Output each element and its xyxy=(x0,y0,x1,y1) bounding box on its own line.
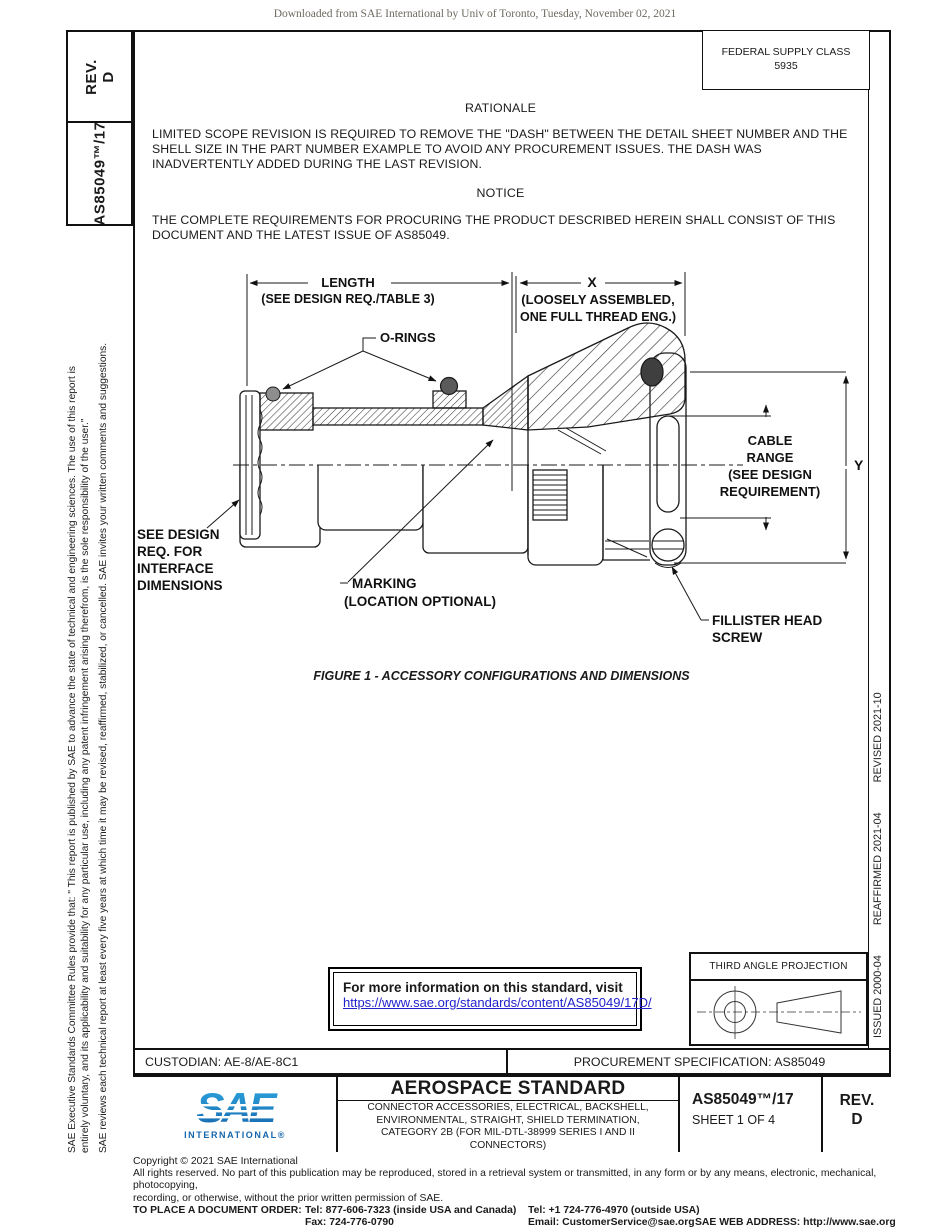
figure-1-drawing: LENGTH (SEE DESIGN REQ./TABLE 3) X (LOOS… xyxy=(133,258,870,658)
see-design-label-4: DIMENSIONS xyxy=(137,578,223,593)
fsc-value: 5935 xyxy=(703,59,869,73)
fillister-label-1: FILLISTER HEAD xyxy=(712,613,822,628)
cable-range-label-4: REQUIREMENT) xyxy=(720,484,820,499)
doc-number-cell: AS85049™/17 SHEET 1 OF 4 xyxy=(680,1077,823,1152)
third-angle-projection-symbol xyxy=(691,981,866,1043)
rev-cell-value: D xyxy=(823,1110,891,1129)
see-design-label-1: SEE DESIGN xyxy=(137,527,220,542)
legal-text-line2: entirely voluntary, and its applicabilit… xyxy=(80,419,91,1153)
notice-heading: NOTICE xyxy=(133,186,868,200)
length-note-label: (SEE DESIGN REQ./TABLE 3) xyxy=(261,292,434,306)
rev-label: REV. xyxy=(82,59,99,95)
copyright-footer: Copyright © 2021 SAE International All r… xyxy=(133,1156,923,1229)
custodian-cell: CUSTODIAN: AE-8/AE-8C1 xyxy=(133,1050,508,1073)
title-block: SAE INTERNATIONAL® AEROSPACE STANDARD CO… xyxy=(133,1075,891,1152)
x-note1-label: (LOOSELY ASSEMBLED, xyxy=(521,292,674,307)
sae-logo-text: SAE xyxy=(196,1084,278,1131)
order-email: Email: CustomerService@sae.org xyxy=(528,1217,695,1229)
rev-cell-label: REV. xyxy=(823,1091,891,1110)
standard-subtitle-4: CONNECTORS) xyxy=(338,1140,678,1153)
sae-logo-subtext: INTERNATIONAL® xyxy=(184,1130,286,1140)
standard-subtitle-1: CONNECTOR ACCESSORIES, ELECTRICAL, BACKS… xyxy=(338,1102,678,1115)
rationale-heading: RATIONALE xyxy=(133,101,868,115)
sheet-number: SHEET 1 OF 4 xyxy=(692,1113,821,1127)
rev-cell: REV. D xyxy=(823,1077,891,1152)
x-dim-label: X xyxy=(587,274,597,290)
y-dim-label: Y xyxy=(854,457,864,473)
reaffirmed-date: REAFFIRMED 2021-04 xyxy=(872,812,884,925)
document-page: Downloaded from SAE International by Uni… xyxy=(0,0,950,1230)
lockwire-hole xyxy=(641,358,663,386)
third-angle-projection-box: THIRD ANGLE PROJECTION xyxy=(689,952,868,1046)
copyright-line: Copyright © 2021 SAE International xyxy=(133,1156,923,1168)
rationale-body: LIMITED SCOPE REVISION IS REQUIRED TO RE… xyxy=(152,127,864,171)
order-label: TO PLACE A DOCUMENT ORDER: xyxy=(133,1205,302,1217)
see-design-label-2: REQ. FOR xyxy=(137,544,203,559)
cable-range-label-2: RANGE xyxy=(747,450,794,465)
custodian-row: CUSTODIAN: AE-8/AE-8C1 PROCUREMENT SPECI… xyxy=(133,1048,891,1075)
revision-history-strip: ISSUED 2000-04 REAFFIRMED 2021-04 REVISE… xyxy=(872,692,884,1038)
more-info-text: For more information on this standard, v… xyxy=(343,980,627,995)
legal-text-line1: SAE Executive Standards Committee Rules … xyxy=(67,366,78,1153)
standard-subtitle-2: ENVIRONMENTAL, STRAIGHT, SHIELD TERMINAT… xyxy=(338,1115,678,1128)
order-fax: Fax: 724-776-0790 xyxy=(305,1217,394,1229)
see-design-label-3: INTERFACE xyxy=(137,561,214,576)
download-notice: Downloaded from SAE International by Uni… xyxy=(0,8,950,20)
cable-range-label-3: (SEE DESIGN xyxy=(728,467,812,482)
standard-subtitle-3: CATEGORY 2B (FOR MIL-DTL-38999 SERIES I … xyxy=(338,1127,678,1140)
fillister-label-2: SCREW xyxy=(712,630,763,645)
rights-line-1: All rights reserved. No part of this pub… xyxy=(133,1168,923,1192)
marking-label-2: (LOCATION OPTIONAL) xyxy=(344,594,496,609)
o-ring-left xyxy=(266,387,280,401)
standard-type-title: AEROSPACE STANDARD xyxy=(338,1077,678,1101)
third-angle-projection-title: THIRD ANGLE PROJECTION xyxy=(691,954,866,981)
more-info-box: For more information on this standard, v… xyxy=(328,967,642,1031)
legal-text-line3: SAE reviews each technical report at lea… xyxy=(98,343,109,1153)
notice-body: THE COMPLETE REQUIREMENTS FOR PROCURING … xyxy=(152,213,864,243)
figure-caption: FIGURE 1 - ACCESSORY CONFIGURATIONS AND … xyxy=(133,669,870,683)
o-ring-right xyxy=(441,378,458,395)
order-web: SAE WEB ADDRESS: http://www.sae.org xyxy=(695,1217,896,1229)
order-tel-1: Tel: 877-606-7323 (inside USA and Canada… xyxy=(305,1205,516,1217)
rev-value: D xyxy=(99,59,116,95)
rights-line-2: recording, or otherwise, without the pri… xyxy=(133,1193,923,1205)
length-dim-label: LENGTH xyxy=(321,275,374,290)
doc-number-vertical: AS85049™/17 xyxy=(91,122,108,226)
procurement-cell: PROCUREMENT SPECIFICATION: AS85049 xyxy=(508,1050,891,1073)
cable-range-label-1: CABLE xyxy=(748,433,793,448)
marking-label-1: MARKING xyxy=(352,576,417,591)
rev-box: REV. D xyxy=(66,30,133,123)
issued-date: ISSUED 2000-04 xyxy=(872,955,884,1038)
revised-date: REVISED 2021-10 xyxy=(872,692,884,782)
sae-logo: SAE INTERNATIONAL® xyxy=(170,1084,300,1146)
federal-supply-class-box: FEDERAL SUPPLY CLASS 5935 xyxy=(702,30,870,90)
standard-title-cell: AEROSPACE STANDARD CONNECTOR ACCESSORIES… xyxy=(338,1077,680,1152)
x-note2-label: ONE FULL THREAD ENG.) xyxy=(520,310,676,324)
fillister-screw-head xyxy=(652,529,684,561)
fsc-label: FEDERAL SUPPLY CLASS xyxy=(703,45,869,59)
order-tel-2: Tel: +1 724-776-4970 (outside USA) xyxy=(528,1205,700,1217)
doc-number-box: AS85049™/17 xyxy=(66,121,133,226)
doc-number: AS85049™/17 xyxy=(692,1091,821,1109)
orings-label: O-RINGS xyxy=(380,330,436,345)
sae-logo-cell: SAE INTERNATIONAL® xyxy=(133,1077,338,1152)
standard-link[interactable]: https://www.sae.org/standards/content/AS… xyxy=(343,995,627,1010)
